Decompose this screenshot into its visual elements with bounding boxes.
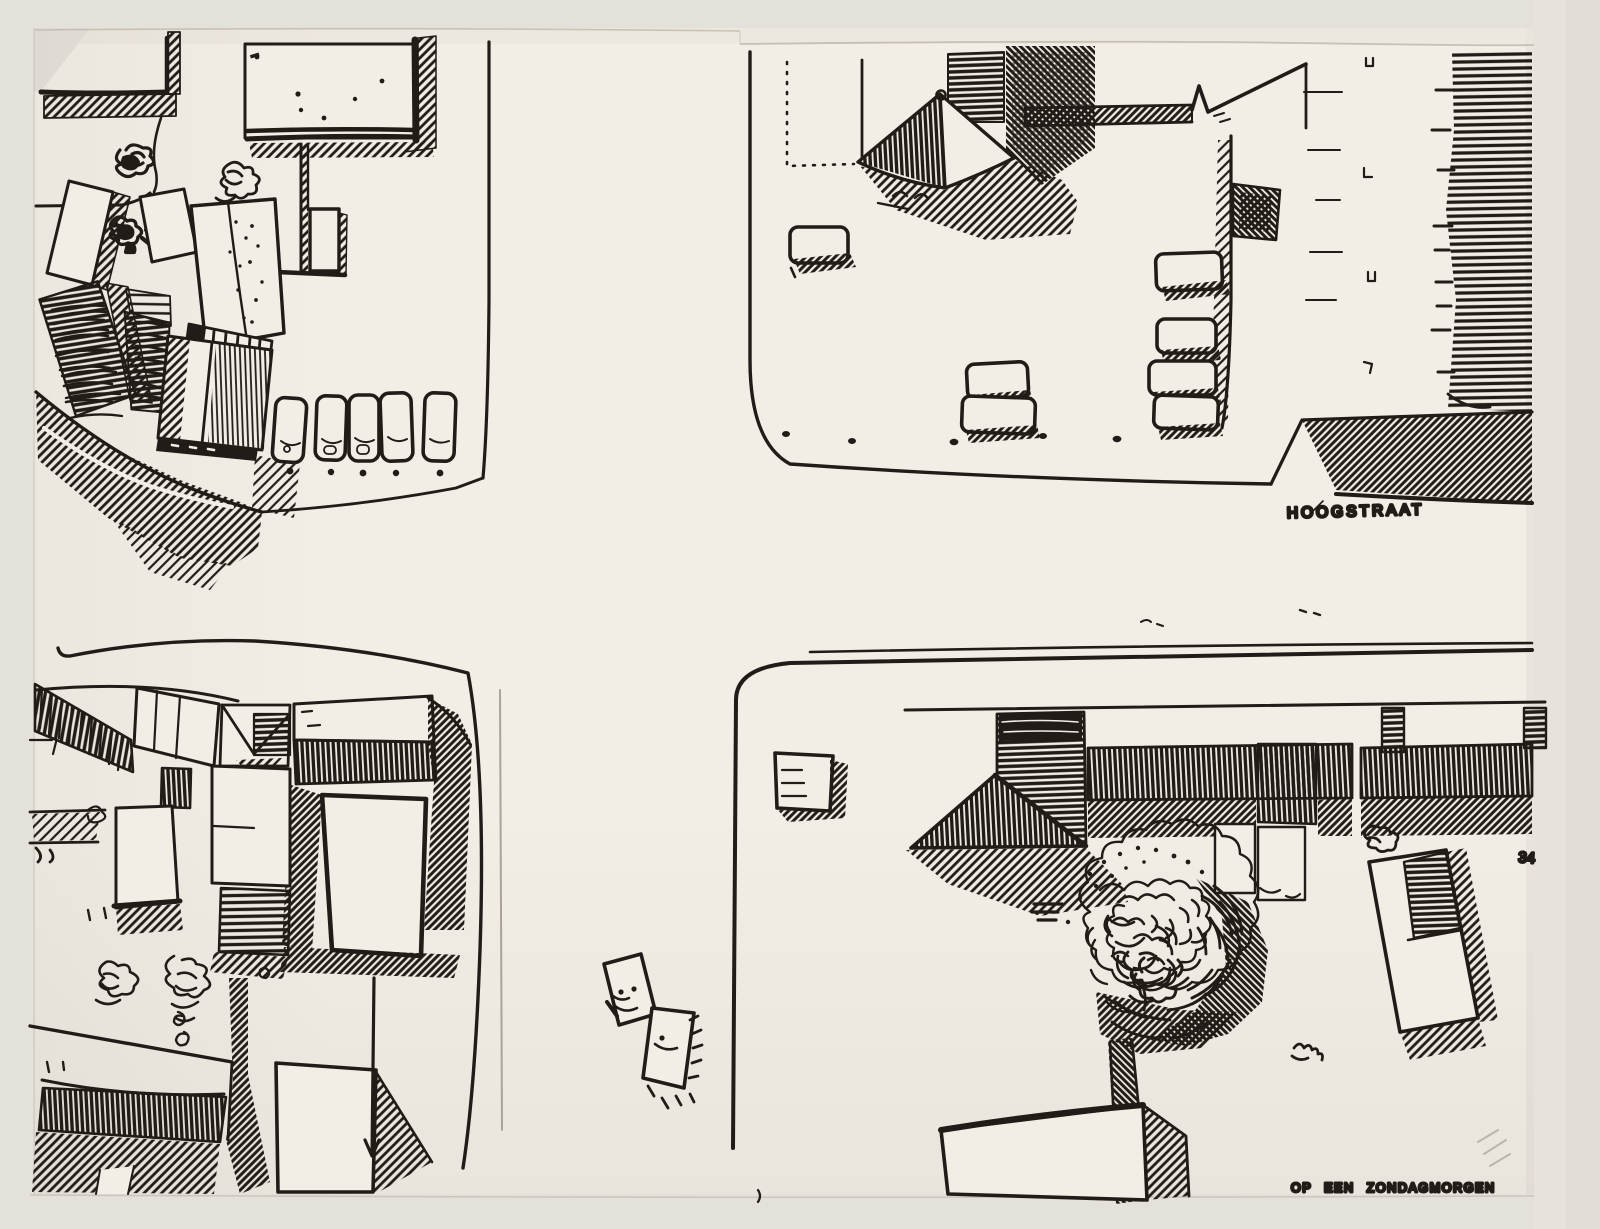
svg-text:HOOGSTRAAT: HOOGSTRAAT (1287, 501, 1425, 522)
svg-text:34: 34 (1518, 849, 1536, 867)
svg-text:OP EEN ZONDAGMORGEN: OP EEN ZONDAGMORGEN (1291, 1181, 1496, 1195)
